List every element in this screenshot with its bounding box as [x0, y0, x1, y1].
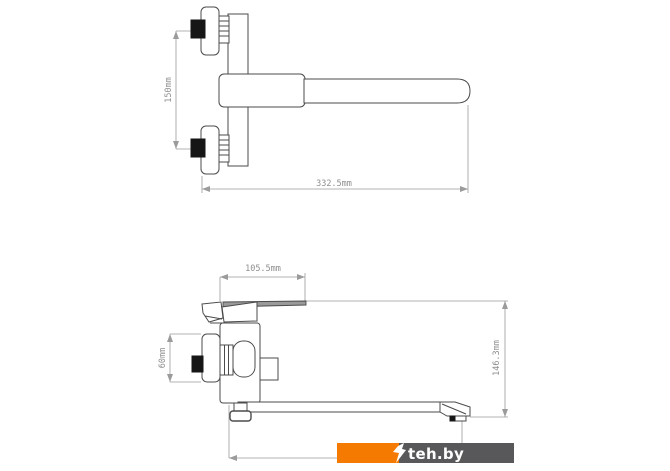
lever-handle: [202, 301, 306, 323]
lower-inlet-mount: [191, 126, 229, 174]
dim-escutcheon-label: 60mm: [158, 348, 168, 368]
spout-tube: [238, 402, 455, 412]
connection-nut: [220, 345, 233, 375]
side-view: 105.5mm 60mm 146.3mm: [158, 264, 508, 461]
watermark-brand-text: teh.by: [408, 445, 464, 463]
mixer-body-front: [219, 74, 305, 107]
lower-thread-nipple: [219, 135, 229, 162]
dim-inlet-spacing-label: 150mm: [164, 77, 174, 103]
side-escutcheon: [202, 334, 220, 382]
front-view: 150mm 332.5mm: [164, 7, 470, 193]
spout-front: [304, 79, 470, 103]
side-wall-mount: [192, 334, 220, 382]
upper-inlet-mount: [191, 7, 229, 55]
diagram-canvas: 150mm 332.5mm: [0, 0, 670, 471]
watermark: teh.by: [337, 443, 514, 463]
aerator-detail: [450, 416, 455, 421]
watermark-orange-block: [337, 443, 399, 463]
dimension-body-depth: 105.5mm: [220, 264, 305, 301]
dim-overall-height-label: 146.3mm: [492, 340, 502, 376]
lower-wall-anchor: [191, 139, 205, 157]
outlet-boss: [260, 358, 278, 380]
dimension-overall-height: 146.3mm: [306, 301, 508, 417]
shower-outlet-cap: [230, 411, 251, 421]
side-wall-anchor: [192, 356, 203, 372]
valve-dome: [233, 341, 255, 377]
dim-body-depth-label: 105.5mm: [245, 264, 281, 274]
upper-wall-anchor: [191, 20, 205, 38]
upper-thread-nipple: [219, 16, 229, 43]
dim-overall-length-label: 332.5mm: [316, 179, 352, 189]
faucet-technical-drawing: 150mm 332.5mm: [0, 0, 670, 471]
dimension-inlet-spacing: 150mm: [164, 31, 201, 149]
spout-side: [238, 402, 470, 421]
